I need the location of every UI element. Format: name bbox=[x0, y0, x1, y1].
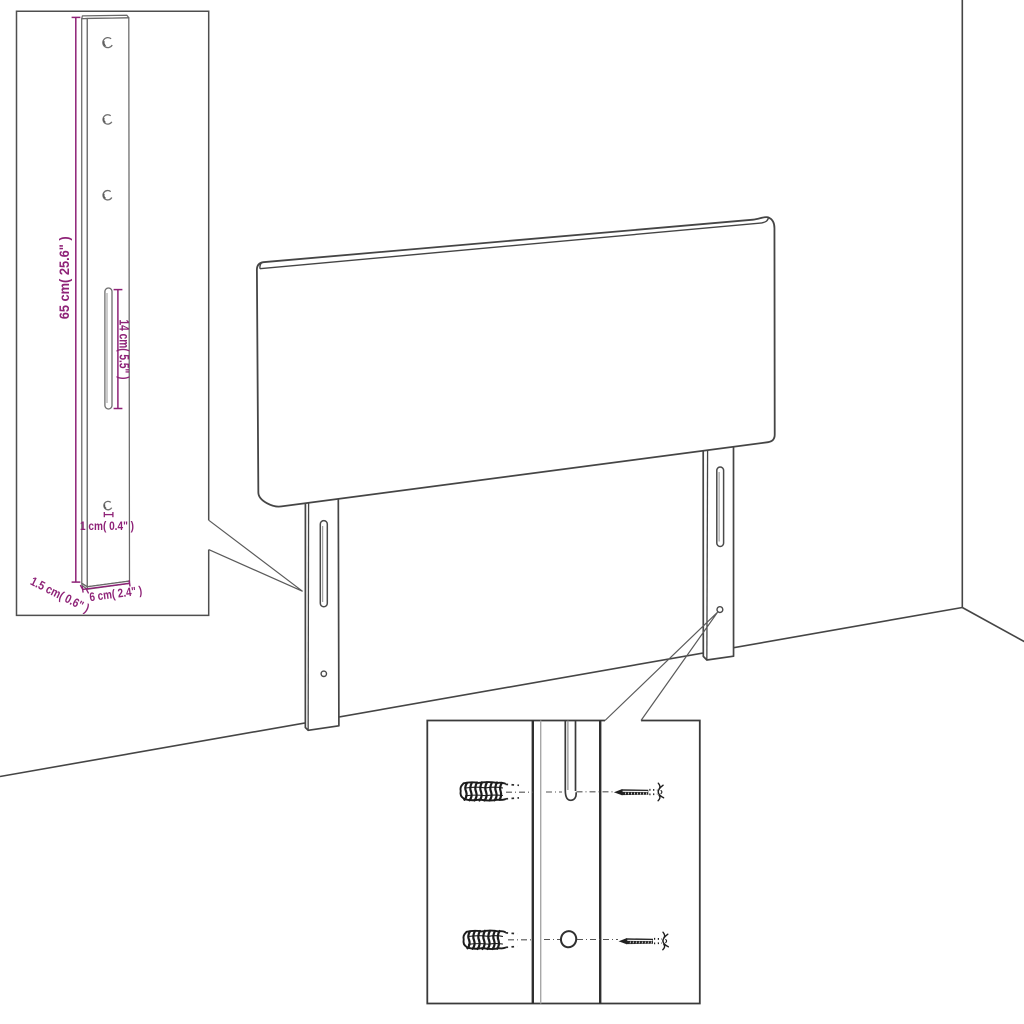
svg-text:65 cm( 25.6" ): 65 cm( 25.6" ) bbox=[56, 236, 72, 319]
svg-text:1 cm( 0.4" ): 1 cm( 0.4" ) bbox=[80, 519, 134, 533]
svg-text:14 cm( 5.5" ): 14 cm( 5.5" ) bbox=[117, 320, 132, 380]
